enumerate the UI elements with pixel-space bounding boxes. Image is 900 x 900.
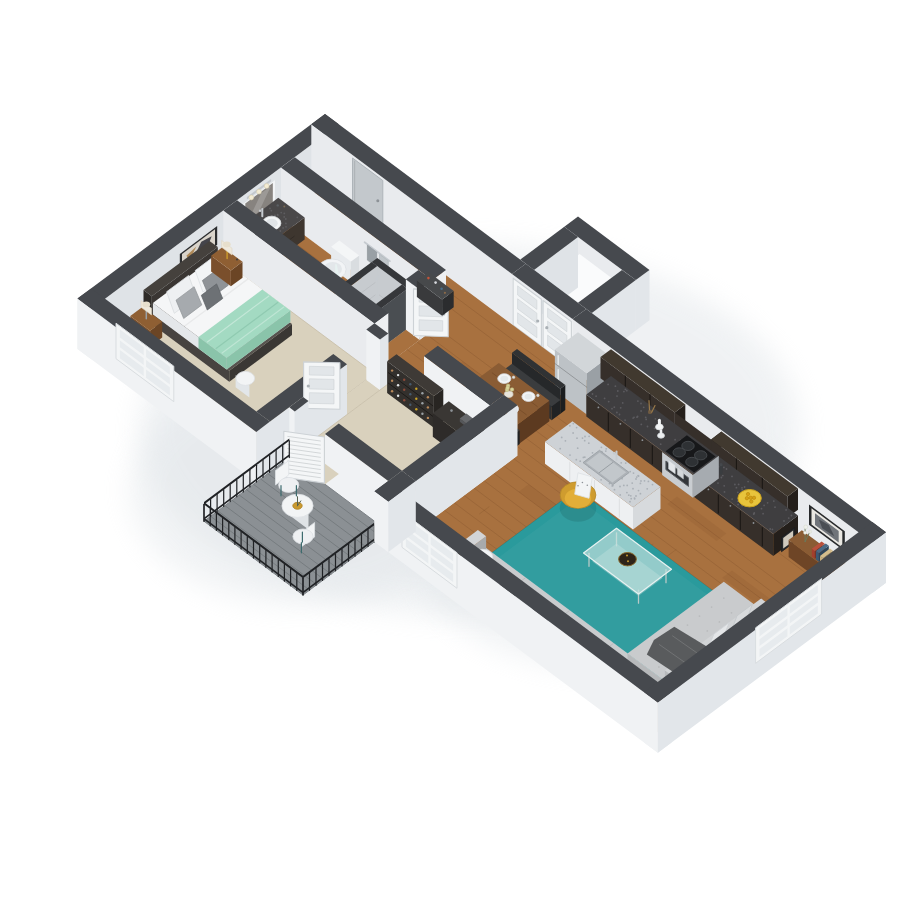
right-exterior-wall — [644, 692, 658, 753]
floorplan-svg — [0, 0, 900, 900]
decor-bowl — [619, 553, 637, 566]
floorplan-image — [0, 0, 900, 900]
stool — [236, 371, 255, 385]
